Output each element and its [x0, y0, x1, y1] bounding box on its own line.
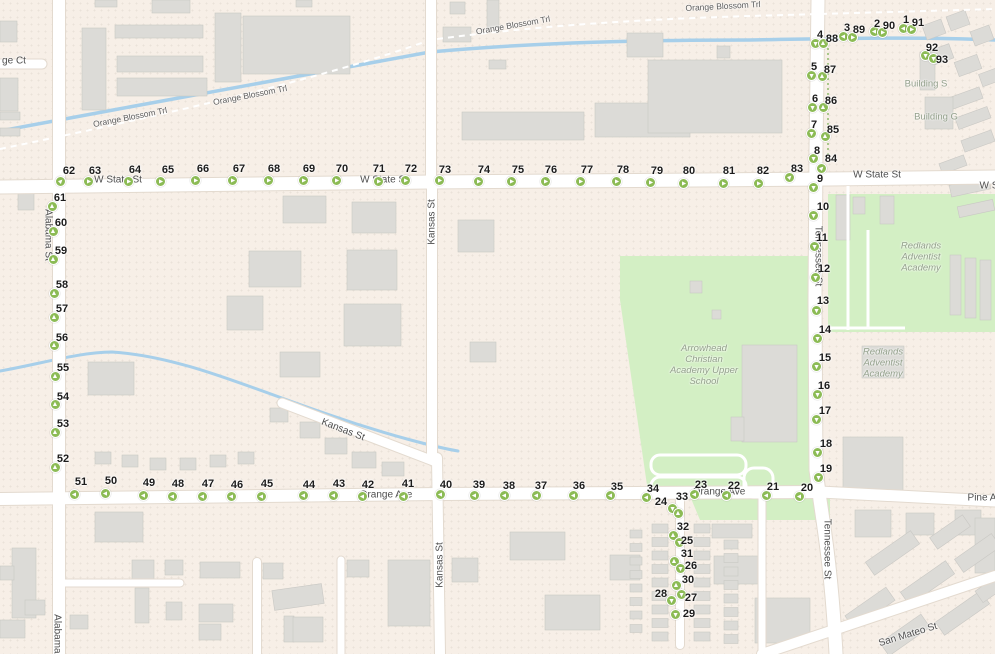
- direction-arrow-icon: ▲: [607, 492, 614, 499]
- route-marker-25[interactable]: ▲: [674, 537, 685, 548]
- building: [487, 0, 499, 28]
- direction-arrow-icon: ▲: [668, 597, 675, 604]
- route-marker-67[interactable]: ▲: [227, 175, 238, 186]
- direction-arrow-icon: ▲: [52, 429, 59, 436]
- direction-arrow-icon: ▲: [85, 178, 92, 185]
- building: [712, 310, 721, 319]
- building: [0, 566, 14, 580]
- building: [694, 619, 710, 628]
- route-marker-36[interactable]: ▲: [568, 490, 579, 501]
- route-marker-60[interactable]: ▲: [48, 226, 59, 237]
- direction-arrow-icon: ▲: [228, 493, 235, 500]
- building: [652, 524, 668, 533]
- building: [344, 304, 401, 346]
- route-marker-77[interactable]: ▲: [575, 176, 586, 187]
- direction-arrow-icon: ▲: [52, 401, 59, 408]
- route-marker-58[interactable]: ▲: [49, 288, 60, 299]
- building: [347, 560, 369, 577]
- building: [855, 510, 891, 537]
- route-marker-79[interactable]: ▲: [645, 177, 656, 188]
- building: [652, 551, 668, 560]
- building: [970, 25, 994, 46]
- route-marker-52[interactable]: ▲: [50, 462, 61, 473]
- building: [694, 565, 710, 574]
- building: [300, 422, 320, 438]
- building: [694, 632, 710, 641]
- building: [450, 2, 465, 14]
- route-marker-20[interactable]: ▲: [794, 491, 805, 502]
- building: [630, 598, 642, 606]
- route-marker-39[interactable]: ▲: [469, 490, 480, 501]
- building: [724, 581, 738, 590]
- direction-arrow-icon: ▲: [673, 582, 680, 589]
- building: [122, 455, 138, 467]
- building: [70, 615, 88, 629]
- building: [249, 251, 301, 287]
- route-marker-29[interactable]: ▲: [670, 609, 681, 620]
- building: [443, 27, 471, 42]
- building: [0, 128, 20, 136]
- route-marker-6[interactable]: ▲: [807, 102, 818, 113]
- direction-arrow-icon: ▲: [52, 464, 59, 471]
- building: [630, 611, 642, 619]
- route-marker-83[interactable]: ▲: [784, 172, 795, 183]
- direction-arrow-icon: ▲: [437, 491, 444, 498]
- route-marker-69[interactable]: ▲: [298, 175, 309, 186]
- route-marker-35[interactable]: ▲: [605, 490, 616, 501]
- building: [150, 458, 166, 470]
- direction-arrow-icon: ▲: [51, 314, 58, 321]
- route-marker-74[interactable]: ▲: [473, 176, 484, 187]
- building: [630, 584, 642, 592]
- building: [352, 202, 396, 233]
- building: [627, 33, 663, 57]
- building: [510, 532, 565, 560]
- direction-arrow-icon: ▲: [157, 178, 164, 185]
- route-marker-65[interactable]: ▲: [155, 176, 166, 187]
- direction-arrow-icon: ▲: [50, 228, 57, 235]
- direction-arrow-icon: ▲: [508, 178, 515, 185]
- route-marker-16[interactable]: ▲: [812, 389, 823, 400]
- building: [880, 614, 930, 654]
- map-canvas[interactable]: Orange Blossom TrlOrange Blossom TrlOran…: [0, 0, 995, 654]
- building: [238, 452, 254, 464]
- direction-arrow-icon: ▲: [810, 184, 817, 191]
- route-marker-5[interactable]: ▲: [806, 70, 817, 81]
- building: [200, 562, 240, 578]
- building: [180, 458, 196, 470]
- route-marker-48[interactable]: ▲: [167, 491, 178, 502]
- building: [694, 524, 710, 533]
- building: [853, 197, 865, 214]
- route-marker-68[interactable]: ▲: [263, 175, 274, 186]
- building: [272, 584, 324, 611]
- route-marker-64[interactable]: ▲: [123, 176, 134, 187]
- building: [284, 616, 294, 642]
- route-marker-19[interactable]: ▲: [813, 472, 824, 483]
- building: [652, 619, 668, 628]
- building: [352, 452, 376, 468]
- direction-arrow-icon: ▲: [809, 104, 816, 111]
- building: [0, 620, 25, 638]
- building: [652, 632, 668, 641]
- direction-arrow-icon: ▲: [533, 492, 540, 499]
- building: [862, 346, 904, 378]
- building: [652, 565, 668, 574]
- building: [25, 600, 45, 615]
- building: [280, 352, 320, 377]
- direction-arrow-icon: ▲: [647, 179, 654, 186]
- route-marker-44[interactable]: ▲: [298, 490, 309, 501]
- building: [865, 531, 919, 576]
- direction-arrow-icon: ▲: [784, 172, 794, 182]
- building: [347, 250, 397, 290]
- direction-arrow-icon: ▲: [810, 155, 817, 162]
- building: [132, 560, 154, 580]
- route-marker-11[interactable]: ▲: [809, 241, 820, 252]
- building: [470, 342, 496, 362]
- direction-arrow-icon: ▲: [808, 72, 815, 79]
- route-marker-17[interactable]: ▲: [811, 414, 822, 425]
- route-marker-9[interactable]: ▲: [808, 182, 819, 193]
- route-marker-59[interactable]: ▲: [48, 254, 59, 265]
- building: [648, 60, 782, 133]
- building: [724, 635, 738, 644]
- direction-arrow-icon: ▲: [763, 492, 770, 499]
- direction-arrow-icon: ▲: [140, 492, 147, 499]
- direction-arrow-icon: ▲: [675, 510, 682, 517]
- building: [724, 608, 738, 617]
- direction-arrow-icon: ▲: [810, 212, 817, 219]
- building: [950, 255, 961, 315]
- direction-arrow-icon: ▲: [796, 493, 803, 500]
- route-marker-33[interactable]: ▲: [673, 508, 684, 519]
- direction-arrow-icon: ▲: [819, 73, 826, 80]
- direction-arrow-icon: ▲: [849, 34, 856, 41]
- building: [724, 554, 738, 563]
- direction-arrow-icon: ▲: [812, 274, 819, 281]
- building: [0, 21, 17, 42]
- building: [724, 567, 738, 576]
- route-marker-42[interactable]: ▲: [357, 491, 368, 502]
- direction-arrow-icon: ▲: [676, 539, 683, 546]
- route-marker-10[interactable]: ▲: [808, 210, 819, 221]
- route-marker-15[interactable]: ▲: [811, 361, 822, 372]
- direction-arrow-icon: ▲: [330, 492, 337, 499]
- direction-arrow-icon: ▲: [400, 493, 407, 500]
- building: [724, 621, 738, 630]
- building: [166, 602, 182, 620]
- route-marker-61[interactable]: ▲: [47, 201, 58, 212]
- building: [925, 97, 953, 129]
- building: [652, 578, 668, 587]
- direction-arrow-icon: ▲: [677, 565, 684, 572]
- direction-arrow-icon: ▲: [359, 493, 366, 500]
- building: [117, 56, 203, 72]
- direction-arrow-icon: ▲: [52, 373, 59, 380]
- direction-arrow-icon: ▲: [169, 493, 176, 500]
- direction-arrow-icon: ▲: [813, 307, 820, 314]
- direction-arrow-icon: ▲: [930, 55, 937, 62]
- building: [630, 625, 642, 633]
- direction-arrow-icon: ▲: [501, 492, 508, 499]
- building: [694, 605, 710, 614]
- route-marker-80[interactable]: ▲: [678, 178, 689, 189]
- building: [630, 571, 642, 579]
- building: [115, 25, 203, 38]
- direction-arrow-icon: ▲: [814, 391, 821, 398]
- building: [694, 551, 710, 560]
- building: [694, 538, 710, 547]
- route-marker-87[interactable]: ▲: [817, 71, 828, 82]
- route-marker-93[interactable]: ▲: [928, 53, 939, 64]
- direction-arrow-icon: ▲: [51, 290, 58, 297]
- building: [965, 258, 976, 318]
- route-marker-46[interactable]: ▲: [226, 491, 237, 502]
- building: [724, 594, 738, 603]
- building: [210, 455, 226, 467]
- building: [296, 0, 312, 7]
- building: [630, 557, 642, 565]
- route-marker-50[interactable]: ▲: [100, 488, 111, 499]
- route-marker-86[interactable]: ▲: [818, 102, 829, 113]
- building: [652, 538, 668, 547]
- route-marker-26[interactable]: ▲: [675, 563, 686, 574]
- direction-arrow-icon: ▲: [300, 492, 307, 499]
- direction-arrow-icon: ▲: [820, 104, 827, 111]
- route-marker-7[interactable]: ▲: [806, 128, 817, 139]
- building: [88, 362, 134, 395]
- direction-arrow-icon: ▲: [672, 611, 679, 618]
- building: [946, 10, 970, 31]
- direction-arrow-icon: ▲: [475, 178, 482, 185]
- building: [0, 78, 18, 111]
- route-marker-28[interactable]: ▲: [666, 595, 677, 606]
- direction-arrow-icon: ▲: [577, 178, 584, 185]
- building: [980, 260, 991, 320]
- route-marker-22[interactable]: ▲: [721, 490, 732, 501]
- route-marker-41[interactable]: ▲: [398, 491, 409, 502]
- direction-arrow-icon: ▲: [840, 33, 847, 40]
- building: [489, 60, 506, 69]
- building: [293, 617, 323, 642]
- building: [843, 437, 903, 492]
- route-marker-18[interactable]: ▲: [812, 447, 823, 458]
- route-marker-12[interactable]: ▲: [810, 272, 821, 283]
- route-marker-51[interactable]: ▲: [69, 489, 80, 500]
- direction-arrow-icon: ▲: [680, 180, 687, 187]
- route-marker-53[interactable]: ▲: [50, 427, 61, 438]
- route-marker-71[interactable]: ▲: [373, 176, 384, 187]
- building: [152, 0, 190, 13]
- direction-arrow-icon: ▲: [808, 130, 815, 137]
- direction-arrow-icon: ▲: [375, 178, 382, 185]
- base-map-layer: [0, 0, 995, 654]
- route-marker-82[interactable]: ▲: [753, 178, 764, 189]
- direction-arrow-icon: ▲: [258, 493, 265, 500]
- route-marker-14[interactable]: ▲: [812, 333, 823, 344]
- building: [199, 604, 233, 622]
- route-marker-66[interactable]: ▲: [190, 175, 201, 186]
- direction-arrow-icon: ▲: [678, 591, 685, 598]
- direction-arrow-icon: ▲: [542, 178, 549, 185]
- building: [82, 28, 106, 110]
- direction-arrow-icon: ▲: [265, 177, 272, 184]
- building: [263, 563, 283, 579]
- building: [949, 87, 983, 109]
- route-marker-54[interactable]: ▲: [50, 399, 61, 410]
- route-marker-45[interactable]: ▲: [256, 491, 267, 502]
- direction-arrow-icon: ▲: [813, 416, 820, 423]
- route-marker-57[interactable]: ▲: [49, 312, 60, 323]
- direction-arrow-icon: ▲: [815, 474, 822, 481]
- building: [117, 78, 207, 96]
- route-marker-8[interactable]: ▲: [808, 153, 819, 164]
- route-marker-75[interactable]: ▲: [506, 176, 517, 187]
- building: [95, 512, 143, 542]
- building: [227, 296, 263, 330]
- building: [880, 196, 894, 224]
- route-marker-23[interactable]: ▲: [689, 489, 700, 500]
- direction-arrow-icon: ▲: [55, 176, 65, 186]
- route-marker-62[interactable]: ▲: [55, 176, 66, 187]
- route-marker-73[interactable]: ▲: [434, 175, 445, 186]
- building: [215, 13, 241, 82]
- route-marker-27[interactable]: ▲: [676, 589, 687, 600]
- direction-arrow-icon: ▲: [333, 177, 340, 184]
- direction-arrow-icon: ▲: [813, 363, 820, 370]
- direction-arrow-icon: ▲: [879, 29, 886, 36]
- route-marker-56[interactable]: ▲: [49, 340, 60, 351]
- direction-arrow-icon: ▲: [643, 494, 650, 501]
- route-marker-72[interactable]: ▲: [400, 175, 411, 186]
- building: [325, 438, 347, 454]
- route-marker-84[interactable]: ▲: [816, 163, 827, 174]
- route-marker-81[interactable]: ▲: [718, 178, 729, 189]
- building: [135, 588, 149, 623]
- route-marker-63[interactable]: ▲: [83, 176, 94, 187]
- building: [283, 196, 326, 223]
- route-marker-70[interactable]: ▲: [331, 175, 342, 186]
- building: [165, 560, 183, 575]
- route-marker-85[interactable]: ▲: [820, 131, 831, 142]
- building: [452, 558, 478, 582]
- building: [630, 544, 642, 552]
- building: [18, 192, 34, 210]
- building: [955, 107, 991, 130]
- route-marker-91[interactable]: ▲: [906, 24, 917, 35]
- route-marker-55[interactable]: ▲: [50, 371, 61, 382]
- building: [630, 530, 642, 538]
- building: [462, 112, 584, 140]
- direction-arrow-icon: ▲: [436, 177, 443, 184]
- building: [694, 592, 710, 601]
- route-marker-90[interactable]: ▲: [877, 27, 888, 38]
- route-marker-40[interactable]: ▲: [435, 489, 446, 500]
- building: [961, 130, 995, 152]
- direction-arrow-icon: ▲: [820, 40, 827, 47]
- direction-arrow-icon: ▲: [50, 256, 57, 263]
- green-areas: [620, 194, 995, 520]
- building: [388, 560, 430, 626]
- direction-arrow-icon: ▲: [723, 492, 730, 499]
- building: [545, 595, 600, 630]
- building: [717, 46, 730, 58]
- direction-arrow-icon: ▲: [814, 449, 821, 456]
- direction-arrow-icon: ▲: [49, 203, 56, 210]
- route-marker-34[interactable]: ▲: [641, 492, 652, 503]
- direction-arrow-icon: ▲: [822, 133, 829, 140]
- building: [731, 417, 744, 441]
- building: [979, 66, 995, 86]
- building: [652, 605, 668, 614]
- direction-arrow-icon: ▲: [613, 178, 620, 185]
- direction-arrow-icon: ▲: [51, 342, 58, 349]
- route-marker-37[interactable]: ▲: [531, 490, 542, 501]
- building: [382, 462, 404, 476]
- building: [199, 624, 221, 640]
- building: [724, 540, 738, 549]
- direction-arrow-icon: ▲: [199, 493, 206, 500]
- direction-arrow-icon: ▲: [102, 490, 109, 497]
- route-marker-47[interactable]: ▲: [197, 491, 208, 502]
- route-marker-88[interactable]: ▲: [818, 38, 829, 49]
- building: [742, 345, 797, 442]
- route-marker-49[interactable]: ▲: [138, 490, 149, 501]
- direction-arrow-icon: ▲: [814, 335, 821, 342]
- direction-arrow-icon: ▲: [300, 177, 307, 184]
- route-marker-43[interactable]: ▲: [328, 490, 339, 501]
- route-marker-38[interactable]: ▲: [499, 490, 510, 501]
- direction-arrow-icon: ▲: [720, 180, 727, 187]
- building: [243, 16, 350, 74]
- direction-arrow-icon: ▲: [402, 177, 409, 184]
- direction-arrow-icon: ▲: [570, 492, 577, 499]
- direction-arrow-icon: ▲: [71, 491, 78, 498]
- route-marker-89[interactable]: ▲: [847, 32, 858, 43]
- building: [0, 112, 20, 120]
- building: [95, 452, 111, 464]
- route-marker-76[interactable]: ▲: [540, 176, 551, 187]
- building: [694, 578, 710, 587]
- direction-arrow-icon: ▲: [816, 163, 826, 173]
- direction-arrow-icon: ▲: [811, 243, 818, 250]
- direction-arrow-icon: ▲: [125, 178, 132, 185]
- direction-arrow-icon: ▲: [471, 492, 478, 499]
- building: [954, 54, 982, 76]
- route-marker-78[interactable]: ▲: [611, 176, 622, 187]
- building: [458, 220, 494, 252]
- direction-arrow-icon: ▲: [691, 491, 698, 498]
- direction-arrow-icon: ▲: [755, 180, 762, 187]
- route-marker-21[interactable]: ▲: [761, 490, 772, 501]
- building: [690, 281, 702, 293]
- direction-arrow-icon: ▲: [908, 26, 915, 33]
- building: [95, 0, 117, 7]
- route-marker-13[interactable]: ▲: [811, 305, 822, 316]
- direction-arrow-icon: ▲: [192, 177, 199, 184]
- direction-arrow-icon: ▲: [229, 177, 236, 184]
- building: [712, 524, 752, 538]
